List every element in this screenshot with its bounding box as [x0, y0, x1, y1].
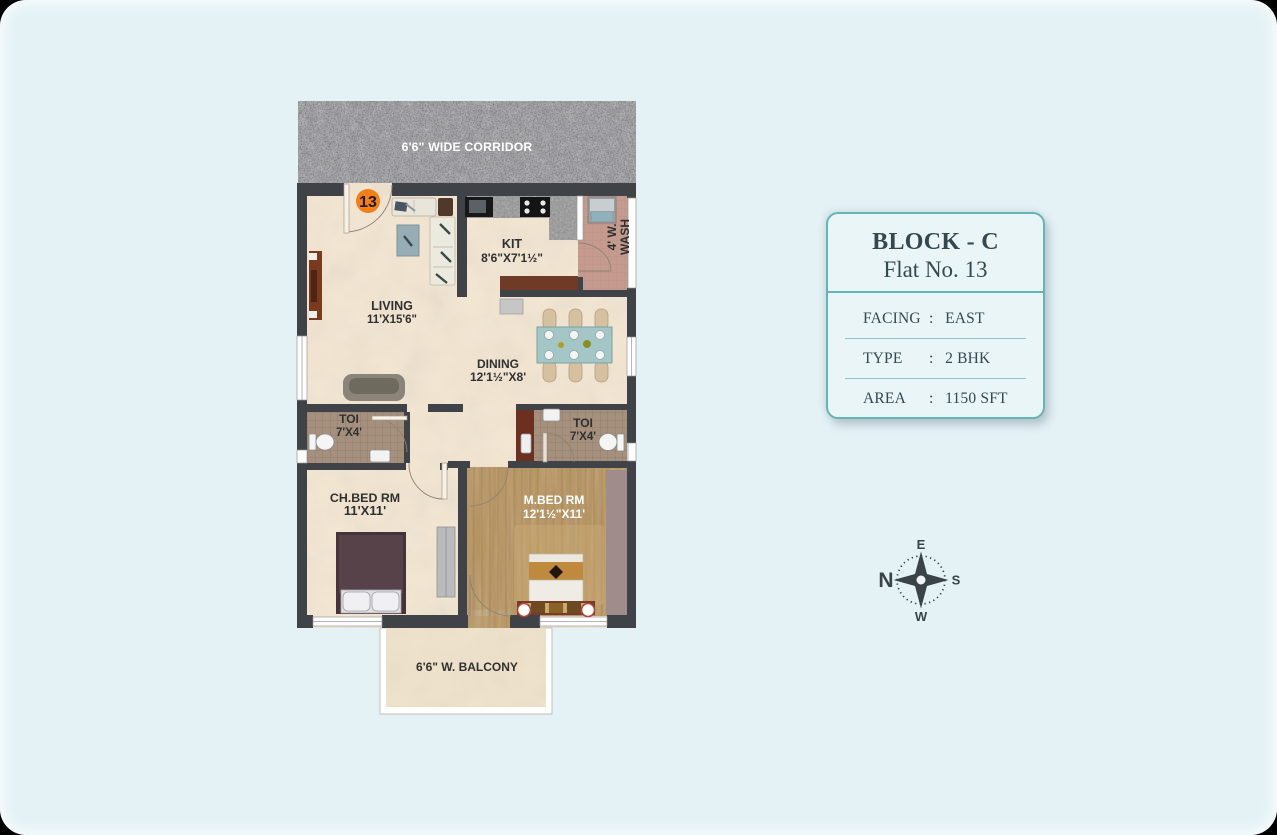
svg-text:M.BED RM: M.BED RM — [524, 493, 585, 507]
svg-text:6'6" W. BALCONY: 6'6" W. BALCONY — [416, 660, 518, 674]
svg-text:8'6"X7'1½": 8'6"X7'1½" — [481, 251, 543, 265]
svg-text:11'X15'6": 11'X15'6" — [367, 314, 417, 326]
svg-text:S: S — [952, 573, 961, 588]
svg-text:4' W.: 4' W. — [605, 224, 619, 251]
svg-text:7'X4': 7'X4' — [336, 427, 362, 439]
svg-text:W: W — [915, 609, 928, 624]
svg-text:TOI: TOI — [573, 416, 593, 430]
svg-text:6'6" WIDE CORRIDOR: 6'6" WIDE CORRIDOR — [402, 140, 533, 154]
svg-text:E: E — [917, 537, 926, 552]
svg-text:TOI: TOI — [339, 412, 359, 426]
svg-text:12'1½"X11': 12'1½"X11' — [523, 507, 585, 521]
svg-text:N: N — [878, 569, 893, 592]
svg-text:WASH: WASH — [618, 219, 632, 255]
svg-text:KIT: KIT — [502, 237, 523, 251]
svg-text:11'X11': 11'X11' — [344, 503, 386, 518]
svg-text:13: 13 — [359, 194, 377, 211]
svg-text:12'1½"X8': 12'1½"X8' — [470, 370, 526, 384]
svg-text:LIVING: LIVING — [371, 299, 413, 313]
svg-text:DINING: DINING — [477, 357, 519, 371]
svg-text:7'X4': 7'X4' — [570, 431, 596, 443]
